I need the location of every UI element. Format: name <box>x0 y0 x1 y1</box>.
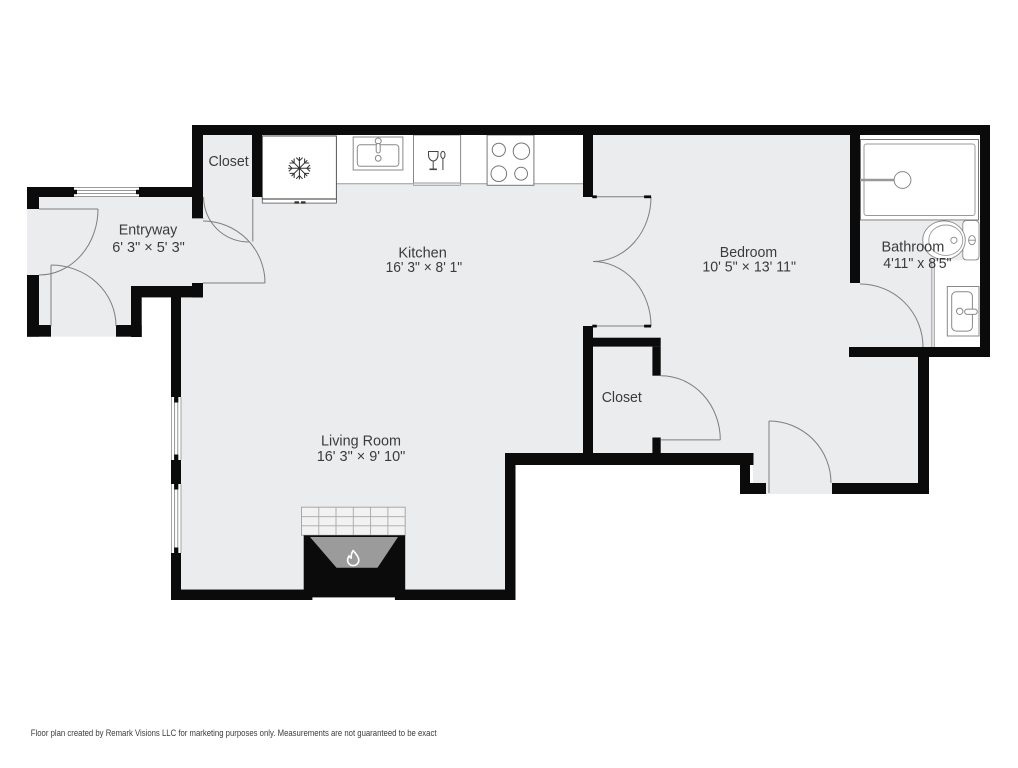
svg-text:16' 3" × 9' 10": 16' 3" × 9' 10" <box>317 448 406 465</box>
svg-text:Closet: Closet <box>209 153 250 170</box>
svg-text:Entryway: Entryway <box>119 222 178 239</box>
svg-text:Floor plan created by Remark V: Floor plan created by Remark Visions LLC… <box>31 728 437 738</box>
svg-text:Bathroom: Bathroom <box>881 239 944 256</box>
svg-text:Living Room: Living Room <box>321 433 401 450</box>
svg-text:4'11" x 8'5": 4'11" x 8'5" <box>883 255 951 272</box>
svg-text:6' 3" × 5' 3": 6' 3" × 5' 3" <box>112 239 185 256</box>
svg-text:16' 3" × 8' 1": 16' 3" × 8' 1" <box>386 259 463 276</box>
svg-text:10' 5" × 13' 11": 10' 5" × 13' 11" <box>702 259 796 276</box>
svg-text:Closet: Closet <box>602 389 643 406</box>
